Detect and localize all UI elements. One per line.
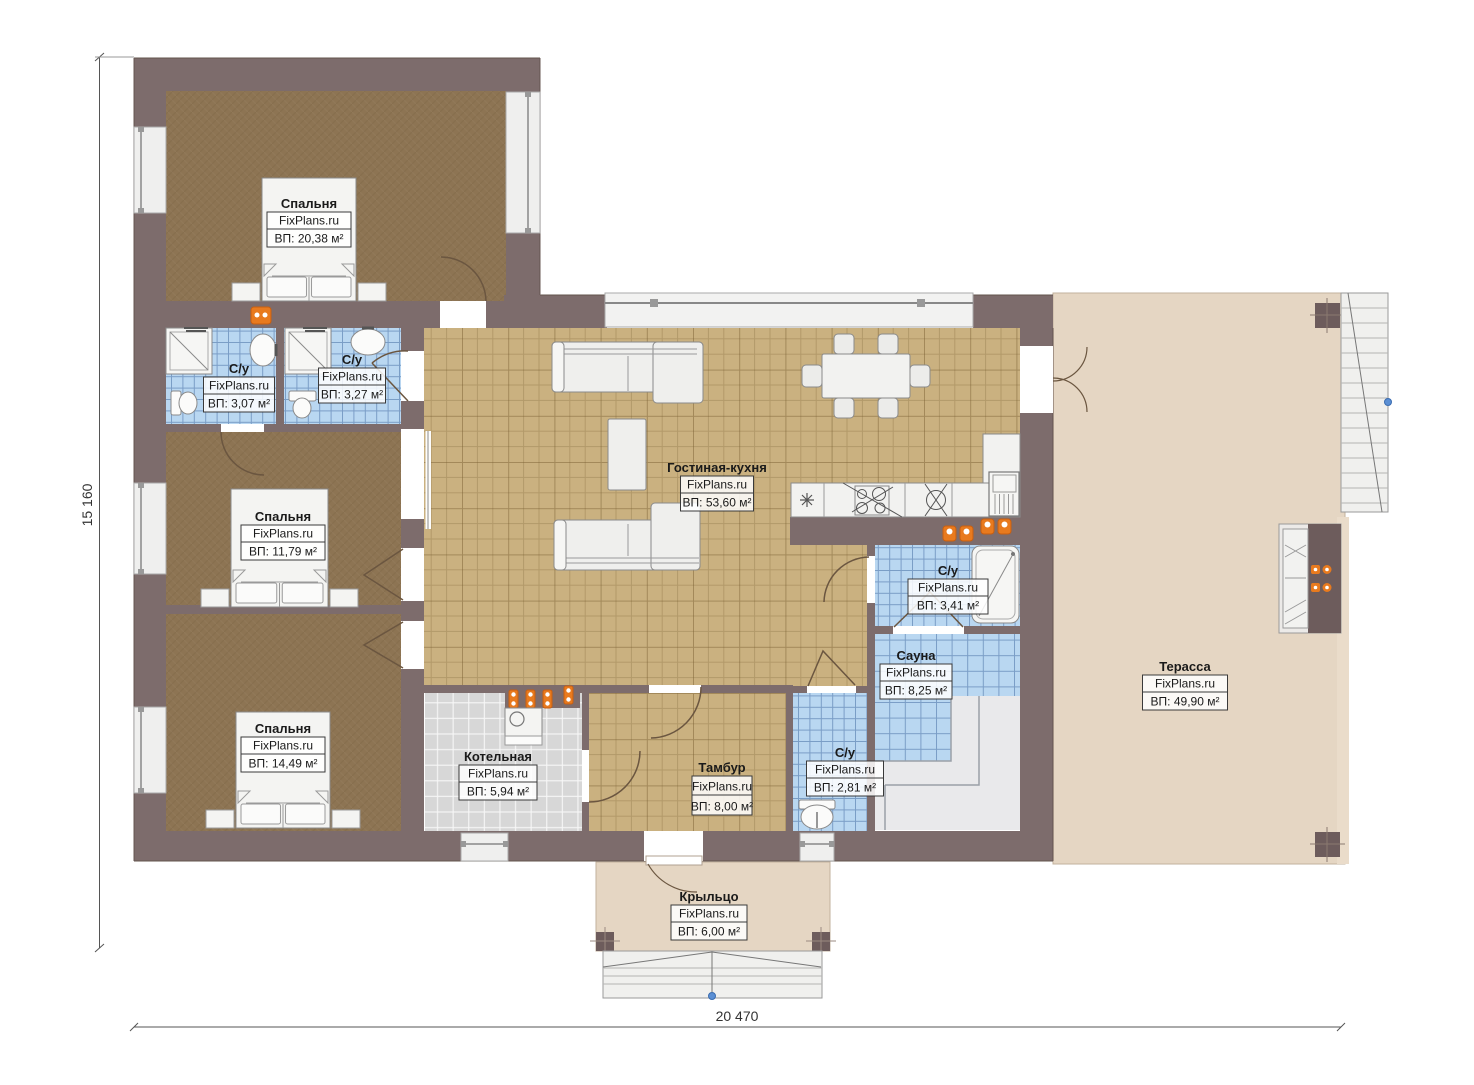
svg-text:С/у: С/у <box>342 352 363 367</box>
svg-text:FixPlans.ru: FixPlans.ru <box>209 379 269 393</box>
svg-text:FixPlans.ru: FixPlans.ru <box>468 767 528 781</box>
svg-text:FixPlans.ru: FixPlans.ru <box>322 370 382 384</box>
svg-text:С/у: С/у <box>835 745 856 760</box>
svg-text:ВП: 8,25 м²: ВП: 8,25 м² <box>885 684 947 698</box>
svg-text:ВП: 3,41 м²: ВП: 3,41 м² <box>917 599 979 613</box>
svg-text:FixPlans.ru: FixPlans.ru <box>253 527 313 541</box>
svg-text:FixPlans.ru: FixPlans.ru <box>886 666 946 680</box>
svg-text:Терасса: Терасса <box>1159 659 1211 674</box>
svg-text:Котельная: Котельная <box>464 749 532 764</box>
svg-text:ВП: 3,07 м²: ВП: 3,07 м² <box>208 397 270 411</box>
svg-text:FixPlans.ru: FixPlans.ru <box>1155 677 1215 691</box>
svg-text:ВП: 8,00 м²: ВП: 8,00 м² <box>691 800 753 814</box>
svg-text:ВП: 20,38 м²: ВП: 20,38 м² <box>275 232 344 246</box>
svg-text:FixPlans.ru: FixPlans.ru <box>687 478 747 492</box>
svg-text:FixPlans.ru: FixPlans.ru <box>253 739 313 753</box>
svg-text:ВП: 49,90 м²: ВП: 49,90 м² <box>1151 695 1220 709</box>
svg-text:Тамбур: Тамбур <box>698 760 745 775</box>
svg-text:FixPlans.ru: FixPlans.ru <box>815 763 875 777</box>
svg-text:15 160: 15 160 <box>79 483 95 526</box>
svg-text:FixPlans.ru: FixPlans.ru <box>918 581 978 595</box>
svg-text:ВП: 11,79 м²: ВП: 11,79 м² <box>249 545 317 559</box>
svg-text:ВП: 53,60 м²: ВП: 53,60 м² <box>683 496 752 510</box>
svg-text:ВП: 6,00 м²: ВП: 6,00 м² <box>678 925 740 939</box>
svg-text:С/у: С/у <box>229 361 250 376</box>
svg-text:С/у: С/у <box>938 563 959 578</box>
svg-text:Гостиная-кухня: Гостиная-кухня <box>667 460 767 475</box>
svg-text:Спальня: Спальня <box>255 509 311 524</box>
svg-text:ВП: 5,94 м²: ВП: 5,94 м² <box>467 785 529 799</box>
svg-text:Спальня: Спальня <box>255 721 311 736</box>
svg-text:ВП: 14,49 м²: ВП: 14,49 м² <box>249 757 318 771</box>
svg-text:FixPlans.ru: FixPlans.ru <box>279 214 339 228</box>
svg-text:FixPlans.ru: FixPlans.ru <box>692 780 752 794</box>
svg-text:Крыльцо: Крыльцо <box>679 889 738 904</box>
svg-text:ВП: 2,81 м²: ВП: 2,81 м² <box>814 781 876 795</box>
svg-text:ВП: 3,27 м²: ВП: 3,27 м² <box>321 388 383 402</box>
svg-text:FixPlans.ru: FixPlans.ru <box>679 907 739 921</box>
svg-text:Спальня: Спальня <box>281 196 337 211</box>
svg-text:Сауна: Сауна <box>896 648 936 663</box>
svg-text:20 470: 20 470 <box>716 1008 759 1024</box>
